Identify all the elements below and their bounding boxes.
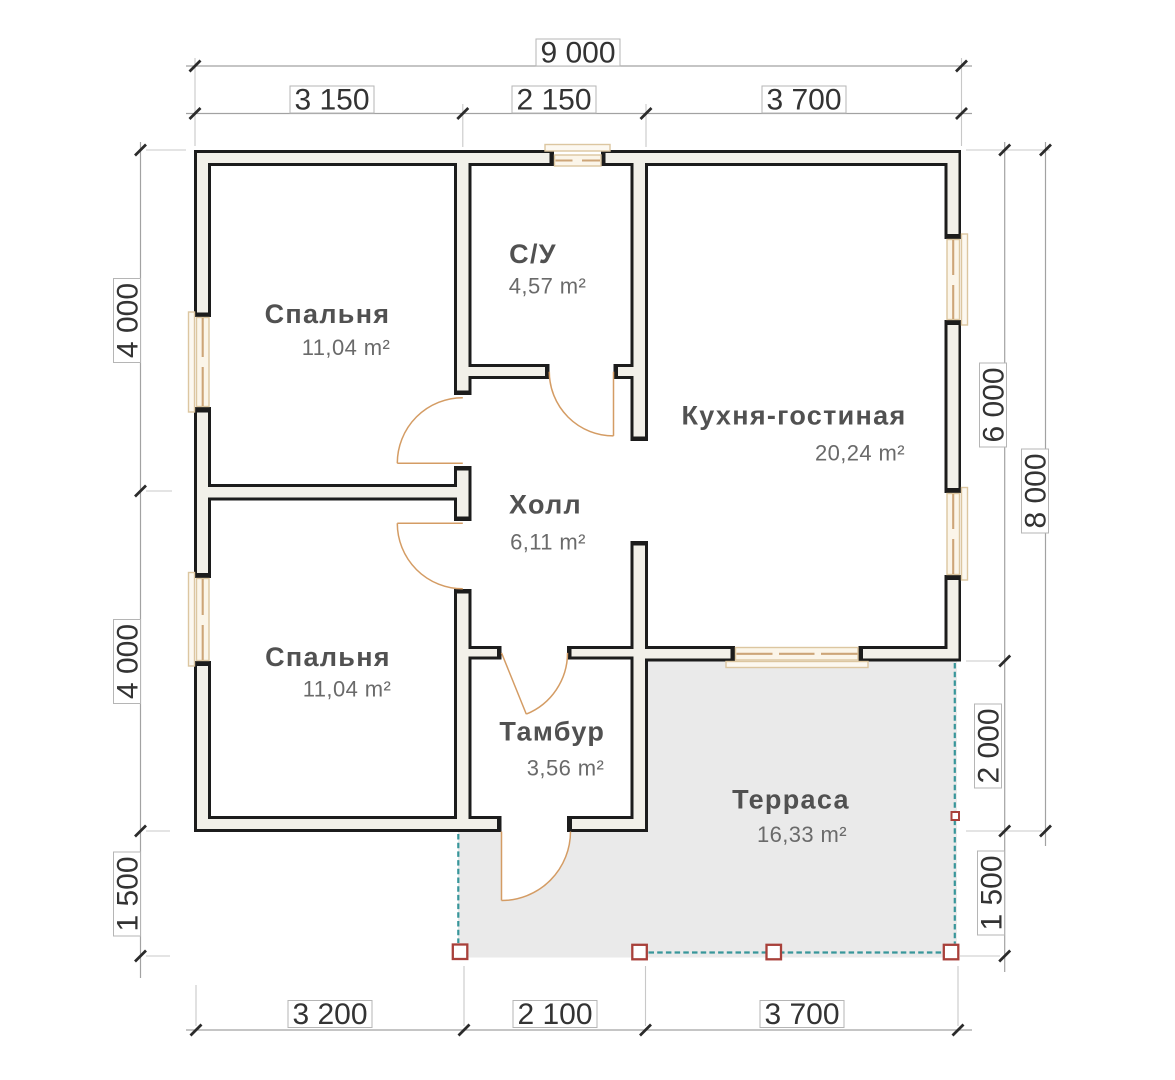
svg-text:11,04 m²: 11,04 m² — [302, 335, 390, 360]
svg-text:4 000: 4 000 — [112, 624, 145, 699]
svg-text:Спальня: Спальня — [265, 299, 391, 329]
svg-text:2 150: 2 150 — [516, 84, 591, 117]
svg-text:Холл: Холл — [509, 490, 582, 520]
svg-text:8 000: 8 000 — [1020, 453, 1053, 528]
svg-text:Кухня-гостиная: Кухня-гостиная — [681, 401, 906, 431]
svg-text:3 200: 3 200 — [292, 998, 367, 1031]
svg-text:2 000: 2 000 — [973, 708, 1006, 783]
svg-text:2 100: 2 100 — [517, 998, 592, 1031]
svg-text:Тамбур: Тамбур — [499, 717, 605, 747]
svg-text:1 500: 1 500 — [112, 856, 145, 931]
svg-text:6 000: 6 000 — [978, 367, 1011, 442]
svg-text:4,57 m²: 4,57 m² — [509, 274, 586, 299]
svg-text:С/У: С/У — [509, 239, 557, 269]
svg-text:1 500: 1 500 — [976, 855, 1009, 930]
svg-text:3,56 m²: 3,56 m² — [527, 756, 604, 781]
svg-text:4 000: 4 000 — [112, 283, 145, 358]
svg-text:6,11 m²: 6,11 m² — [510, 530, 586, 555]
svg-text:Терраса: Терраса — [732, 785, 850, 815]
svg-text:20,24 m²: 20,24 m² — [815, 441, 905, 466]
svg-text:3 700: 3 700 — [766, 84, 841, 117]
svg-text:3 700: 3 700 — [764, 998, 839, 1031]
svg-text:11,04 m²: 11,04 m² — [303, 677, 391, 702]
svg-text:3 150: 3 150 — [294, 84, 369, 117]
svg-text:16,33 m²: 16,33 m² — [757, 822, 847, 847]
svg-text:Спальня: Спальня — [265, 642, 391, 672]
svg-text:9 000: 9 000 — [540, 37, 615, 70]
